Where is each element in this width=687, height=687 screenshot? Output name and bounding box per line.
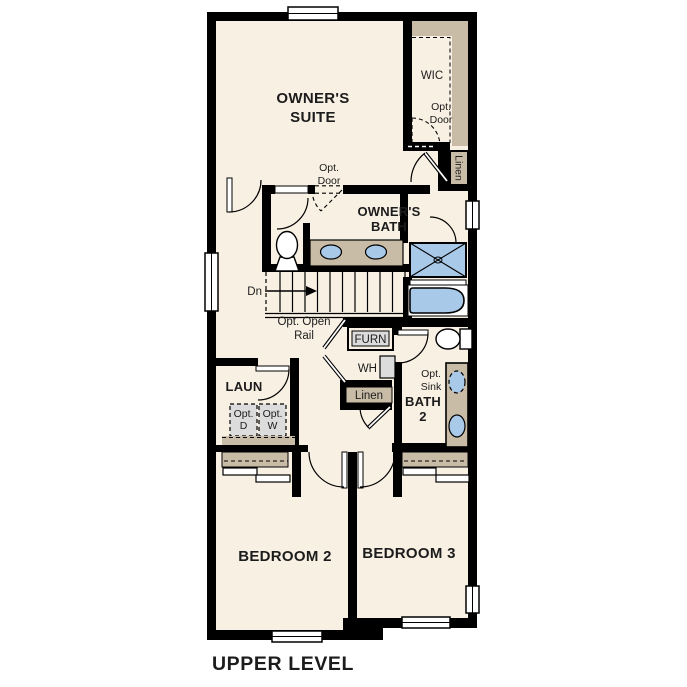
toilet-bowl xyxy=(277,232,298,259)
optional-sink xyxy=(449,371,465,393)
laundry-label: LAUN xyxy=(226,379,263,394)
wall-segment xyxy=(340,380,392,387)
furnace-label: FURN xyxy=(355,334,387,346)
wall-segment xyxy=(348,452,357,630)
water-heater-label: WH xyxy=(358,363,377,375)
upper-linen-label: Linen xyxy=(453,155,465,181)
shower xyxy=(410,243,466,286)
window-right-upper xyxy=(466,201,479,229)
wall-segment xyxy=(343,185,430,194)
opt-door-suite-label-line1: Opt. xyxy=(319,162,339,174)
door-leaf xyxy=(227,178,232,212)
toilet-tank xyxy=(460,329,472,349)
window-bedroom3 xyxy=(402,617,450,628)
wall-segment xyxy=(262,185,275,194)
owners-bath-toilet xyxy=(275,232,299,272)
opt-door-suite-label-line2: Door xyxy=(318,175,341,187)
bath2-label-line1: BATH xyxy=(405,394,441,409)
bypass-door xyxy=(256,475,290,482)
owners-bath-vanity xyxy=(310,240,403,266)
bedroom2-label: BEDROOM 2 xyxy=(238,548,332,565)
opt-washer-label-line2: W xyxy=(268,420,278,432)
wic-label: WIC xyxy=(421,70,443,82)
toilet-bowl xyxy=(436,329,460,349)
opt-open-rail-label-line2: Rail xyxy=(294,330,314,342)
vanity-sink-right xyxy=(366,245,387,259)
window-bedroom2 xyxy=(272,631,322,642)
bathtub xyxy=(408,285,468,316)
wall-segment xyxy=(262,194,271,272)
closet-shelf xyxy=(402,452,468,467)
opt-door-wic-label-line1: Opt. xyxy=(431,101,451,113)
floor-bedroom2-lower xyxy=(216,618,343,630)
vanity-sink-left xyxy=(321,245,342,259)
door-leaf xyxy=(398,330,428,335)
tub-basin xyxy=(410,288,464,313)
owners-suite-label-line2: SUITE xyxy=(290,109,336,126)
door-leaf xyxy=(358,452,363,488)
wall-segment xyxy=(216,358,258,366)
door-leaf xyxy=(342,452,347,488)
wic-shelf-right xyxy=(452,21,468,146)
opt-dryer-label-line1: Opt. xyxy=(234,408,254,420)
wall-segment xyxy=(340,403,392,410)
wall-segment xyxy=(207,12,477,21)
bedroom3-label: BEDROOM 3 xyxy=(362,545,456,562)
opt-open-rail-label-line1: Opt. Open xyxy=(277,316,330,328)
floor-plan-drawing: OWNER'S SUITE WIC Opt. Door Opt. Door Li… xyxy=(0,0,687,687)
opt-dryer-label-line2: D xyxy=(240,420,248,432)
floor-plan-page: OWNER'S SUITE WIC Opt. Door Opt. Door Li… xyxy=(0,0,687,687)
opt-sink-label-line2: Sink xyxy=(421,381,442,393)
hall-linen-label: Linen xyxy=(355,390,383,402)
bath2-label-line2: 2 xyxy=(419,409,426,424)
wall-segment xyxy=(403,12,412,151)
wall-segment xyxy=(292,452,301,497)
window-left xyxy=(205,253,218,311)
opt-sink-label-line1: Opt. xyxy=(421,368,441,380)
window-top xyxy=(288,7,338,20)
wall-segment xyxy=(343,318,476,327)
bypass-door xyxy=(403,468,436,475)
bath2-vanity xyxy=(446,363,468,447)
opt-door-wic-label-line2: Door xyxy=(430,114,453,126)
owners-bath-label-line2: BATH xyxy=(371,219,407,234)
bath2-toilet xyxy=(436,329,472,349)
wall-segment xyxy=(216,445,308,452)
window-right-lower xyxy=(466,586,479,613)
opt-washer-label-line1: Opt. xyxy=(263,408,283,420)
water-heater-box xyxy=(380,356,395,378)
door-leaf xyxy=(275,186,308,193)
sink xyxy=(449,415,465,437)
closet-shelf xyxy=(222,452,288,467)
owners-bath-label-line1: OWNER'S xyxy=(358,204,421,219)
bypass-door xyxy=(223,468,257,475)
plan-title: UPPER LEVEL xyxy=(212,653,354,675)
owners-suite-label-line1: OWNER'S xyxy=(276,90,349,107)
wall-segment xyxy=(308,185,315,194)
door-leaf xyxy=(256,366,289,371)
stair-down-label: Dn xyxy=(247,286,262,298)
wall-segment xyxy=(207,12,216,640)
bypass-door xyxy=(436,475,469,482)
